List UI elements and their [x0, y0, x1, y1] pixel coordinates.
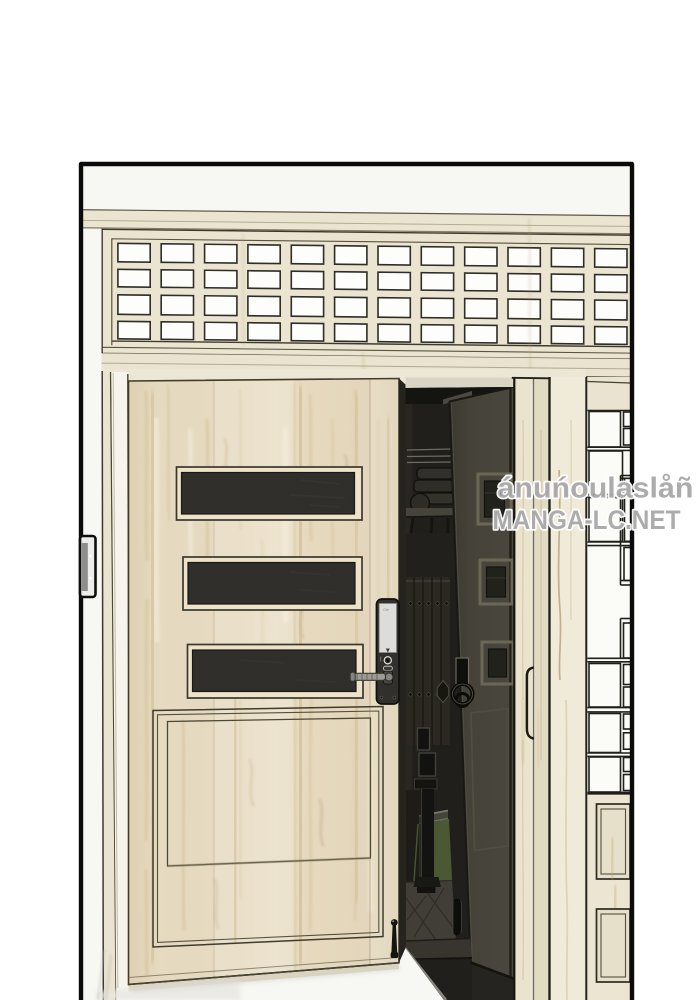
svg-text:MANGA-LC.NET: MANGA-LC.NET	[493, 505, 681, 535]
svg-text:ánuńoulaslåñ: ánuńoulaslåñ	[498, 473, 694, 505]
svg-text:Cle: Cle	[383, 607, 390, 612]
